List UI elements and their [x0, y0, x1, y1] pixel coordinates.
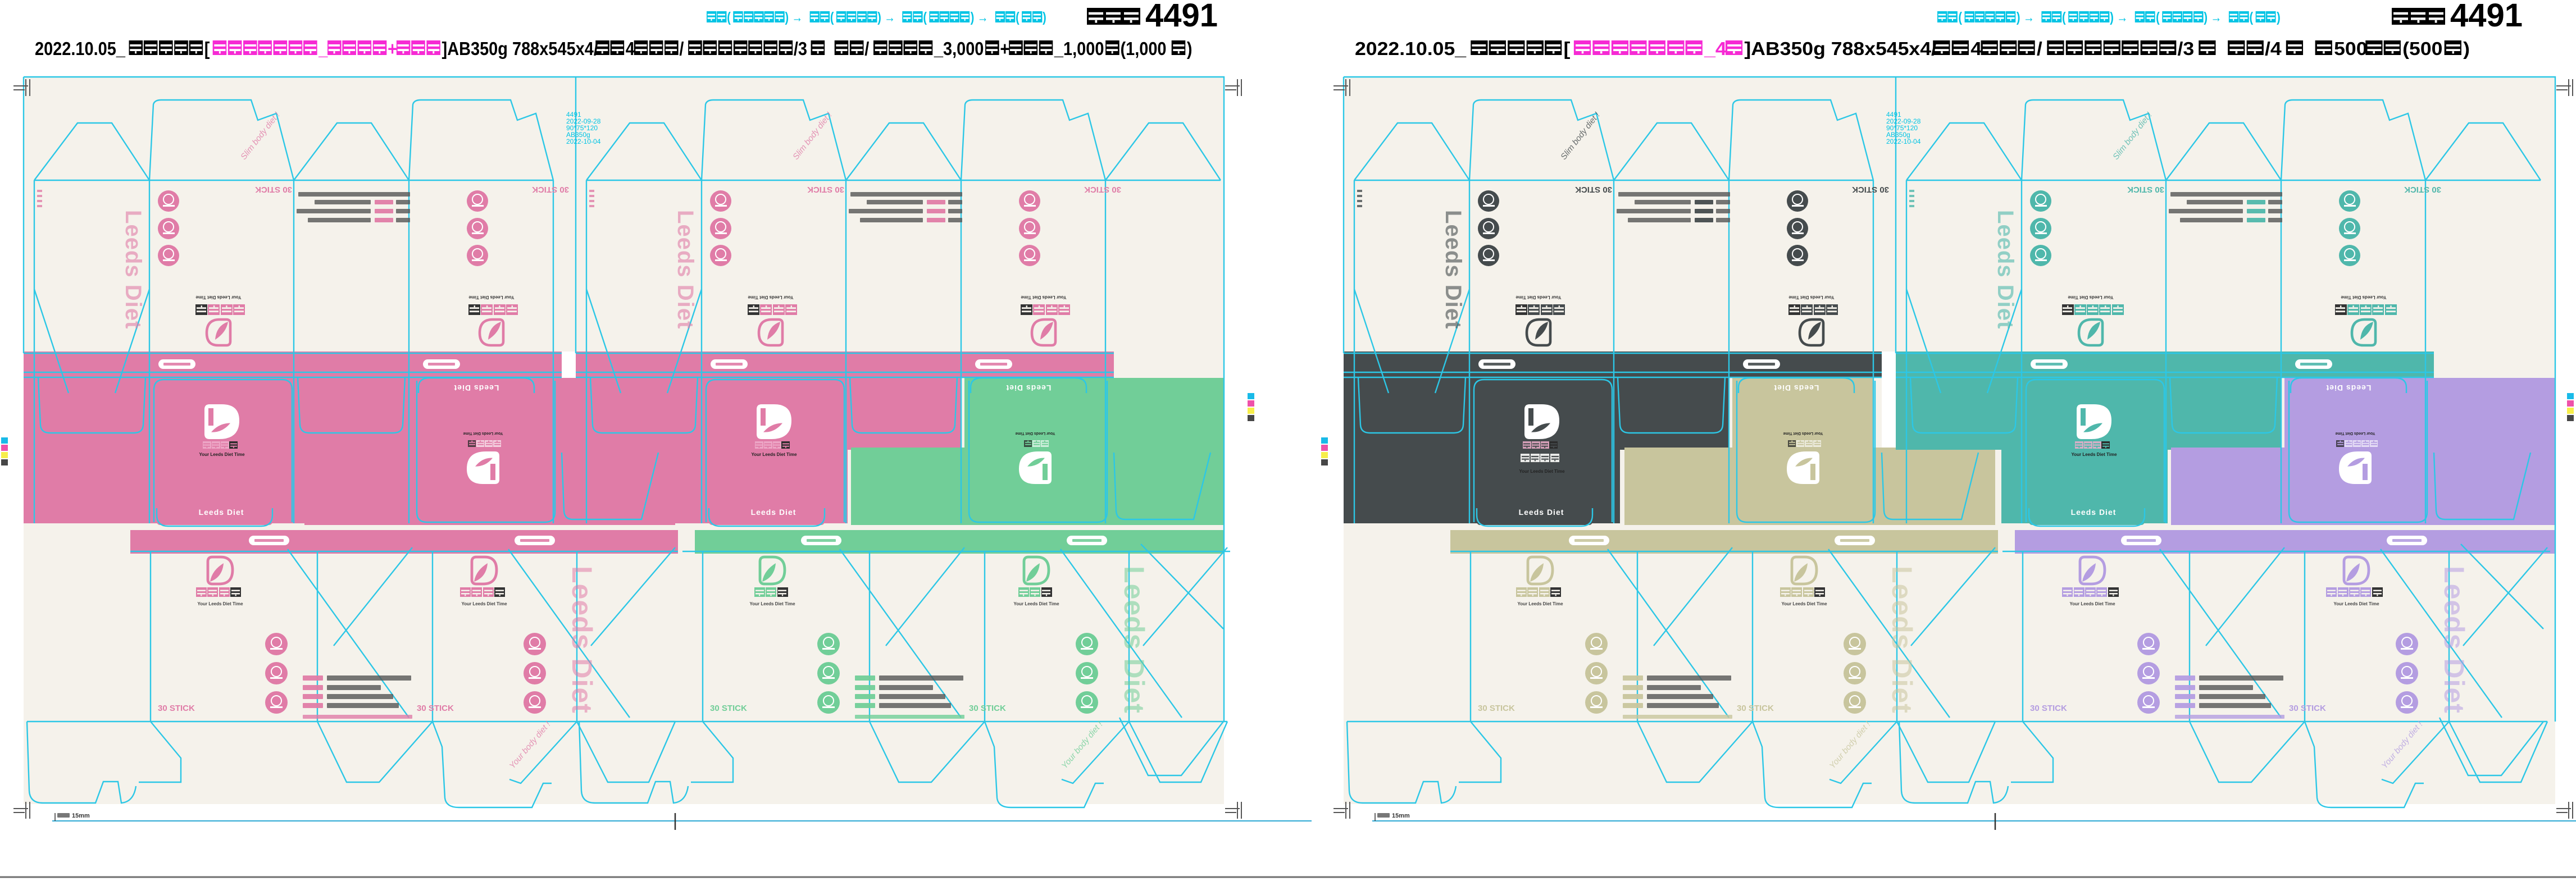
- svg-text:500: 500: [2334, 39, 2367, 60]
- svg-text:/3: /3: [794, 38, 807, 59]
- svg-text:(: (: [923, 10, 927, 25]
- svg-text:4491: 4491: [2450, 0, 2523, 34]
- svg-text:30 STICK: 30 STICK: [2030, 704, 2067, 713]
- svg-text:Leeds Diet: Leeds Diet: [2071, 508, 2117, 517]
- svg-text:): ): [1043, 10, 1046, 25]
- svg-text:): ): [2463, 39, 2470, 60]
- svg-text:Your Leeds Diet Time: Your Leeds Diet Time: [1788, 295, 1835, 300]
- svg-text:(: (: [830, 10, 834, 25]
- svg-text:Your Leeds Diet Time: Your Leeds Diet Time: [749, 601, 795, 606]
- svg-text:4: 4: [626, 38, 635, 59]
- svg-text:/: /: [864, 38, 869, 59]
- svg-text:30 STICK: 30 STICK: [2127, 185, 2164, 194]
- svg-text:Your Leeds Diet Time: Your Leeds Diet Time: [195, 295, 242, 300]
- svg-text:Leeds Diet: Leeds Diet: [566, 566, 598, 714]
- svg-text:2022.10.05_: 2022.10.05_: [1355, 39, 1467, 60]
- svg-text:2022.10.05_: 2022.10.05_: [35, 38, 126, 59]
- svg-text:30 STICK: 30 STICK: [158, 704, 195, 713]
- svg-text:Leeds Diet: Leeds Diet: [1118, 566, 1150, 714]
- svg-text:30 STICK: 30 STICK: [1737, 704, 1774, 713]
- svg-text:Leeds Diet: Leeds Diet: [1006, 384, 1052, 392]
- svg-text:+: +: [1000, 38, 1009, 59]
- svg-text:) →: ) →: [877, 10, 895, 25]
- svg-text:(: (: [1016, 10, 1020, 25]
- svg-text:Leeds Diet: Leeds Diet: [1774, 384, 1819, 392]
- svg-text:Leeds Diet: Leeds Diet: [1441, 210, 1466, 329]
- svg-text:_3,000: _3,000: [934, 38, 984, 59]
- svg-text:Leeds Diet: Leeds Diet: [199, 508, 244, 517]
- svg-text:Your Leeds Diet Time: Your Leeds Diet Time: [2335, 431, 2375, 435]
- svg-text:) →: ) →: [2017, 10, 2035, 25]
- svg-text:[: [: [204, 38, 210, 59]
- svg-text:Your Leeds Diet Time: Your Leeds Diet Time: [197, 601, 243, 606]
- svg-text:/3: /3: [2177, 39, 2194, 60]
- svg-text:Leeds Diet: Leeds Diet: [121, 210, 145, 329]
- svg-text:(: (: [2250, 10, 2254, 25]
- svg-text:Your Leeds Diet Time: Your Leeds Diet Time: [1517, 601, 1563, 606]
- svg-text:30 STICK: 30 STICK: [1084, 185, 1121, 194]
- svg-text:) →: ) →: [2204, 10, 2222, 25]
- svg-text:30 STICK: 30 STICK: [710, 704, 747, 713]
- svg-text:30 STICK: 30 STICK: [807, 185, 844, 194]
- svg-text:Leeds Diet: Leeds Diet: [2438, 566, 2470, 714]
- svg-text:]AB350g 788x545x4/: ]AB350g 788x545x4/: [1744, 39, 1937, 60]
- svg-text:30 STICK: 30 STICK: [1478, 704, 1515, 713]
- svg-text:(: (: [2062, 10, 2066, 25]
- svg-text:Leeds Diet: Leeds Diet: [1993, 210, 2018, 329]
- svg-text:2022-10-04: 2022-10-04: [566, 138, 601, 145]
- svg-text:(: (: [1958, 10, 1962, 25]
- svg-text:) →: ) →: [785, 10, 803, 25]
- svg-text:30 STICK: 30 STICK: [2289, 704, 2326, 713]
- svg-text:Your Leeds Diet Time: Your Leeds Diet Time: [1519, 469, 1565, 474]
- svg-text:_1,000: _1,000: [1054, 38, 1104, 59]
- svg-text:30 STICK: 30 STICK: [969, 704, 1006, 713]
- svg-text:30 STICK: 30 STICK: [2404, 185, 2441, 194]
- svg-text:15mm: 15mm: [72, 812, 90, 819]
- svg-text:Your Leeds Diet Time: Your Leeds Diet Time: [2069, 601, 2115, 606]
- svg-text:Your Leeds Diet Time: Your Leeds Diet Time: [748, 295, 794, 300]
- svg-text:): ): [2277, 10, 2281, 25]
- svg-text:30 STICK: 30 STICK: [1852, 185, 1889, 194]
- svg-text:Leeds Diet: Leeds Diet: [454, 384, 499, 392]
- svg-text:/: /: [679, 38, 684, 59]
- svg-text:_4: _4: [1704, 39, 1727, 60]
- svg-text:4: 4: [1970, 39, 1982, 60]
- svg-text:30 STICK: 30 STICK: [532, 185, 569, 194]
- svg-text:(: (: [2156, 10, 2160, 25]
- svg-text:) →: ) →: [2110, 10, 2128, 25]
- svg-text:(500: (500: [2402, 39, 2442, 60]
- svg-text:Leeds Diet: Leeds Diet: [751, 508, 797, 517]
- svg-text:Your Leeds Diet Time: Your Leeds Diet Time: [1021, 295, 1067, 300]
- svg-text:Leeds Diet: Leeds Diet: [2326, 384, 2372, 392]
- svg-text:Your Leeds Diet Time: Your Leeds Diet Time: [1783, 431, 1823, 435]
- svg-text:4491: 4491: [1145, 0, 1218, 34]
- svg-text:Your Leeds Diet Time: Your Leeds Diet Time: [463, 431, 503, 435]
- svg-text:(: (: [727, 10, 731, 25]
- svg-text:]AB350g 788x545x4/: ]AB350g 788x545x4/: [442, 38, 599, 59]
- svg-text:Your Leeds Diet Time: Your Leeds Diet Time: [2068, 295, 2114, 300]
- svg-text:/: /: [2037, 39, 2042, 60]
- svg-text:Your Leeds Diet Time: Your Leeds Diet Time: [2071, 452, 2117, 457]
- svg-text:Leeds Diet: Leeds Diet: [1886, 566, 1918, 714]
- svg-text:): ): [1187, 38, 1193, 59]
- svg-text:) →: ) →: [971, 10, 989, 25]
- svg-text:Your Leeds Diet Time: Your Leeds Diet Time: [461, 601, 507, 606]
- svg-text:Leeds Diet: Leeds Diet: [673, 210, 698, 329]
- svg-text:15mm: 15mm: [1392, 812, 1410, 819]
- svg-text:2022-10-04: 2022-10-04: [1886, 138, 1921, 145]
- svg-text:+: +: [388, 38, 397, 59]
- svg-text:[: [: [1564, 39, 1571, 60]
- svg-text:Your Leeds Diet Time: Your Leeds Diet Time: [1013, 601, 1059, 606]
- svg-text:_: _: [318, 38, 328, 59]
- svg-text:Your Leeds Diet Time: Your Leeds Diet Time: [468, 295, 515, 300]
- svg-text:Leeds Diet: Leeds Diet: [1519, 508, 1564, 517]
- svg-text:(1,000: (1,000: [1120, 38, 1166, 59]
- svg-text:Your Leeds Diet Time: Your Leeds Diet Time: [1015, 431, 1055, 435]
- svg-text:Your Leeds Diet Time: Your Leeds Diet Time: [751, 452, 797, 457]
- svg-text:Your Leeds Diet Time: Your Leeds Diet Time: [2333, 601, 2379, 606]
- svg-text:30 STICK: 30 STICK: [1575, 185, 1612, 194]
- svg-text:Your Leeds Diet Time: Your Leeds Diet Time: [1515, 295, 1562, 300]
- svg-text:/4: /4: [2265, 39, 2282, 60]
- svg-text:30 STICK: 30 STICK: [255, 185, 292, 194]
- svg-text:30 STICK: 30 STICK: [417, 704, 454, 713]
- svg-text:Your Leeds Diet Time: Your Leeds Diet Time: [1781, 601, 1827, 606]
- svg-text:Your Leeds Diet Time: Your Leeds Diet Time: [2341, 295, 2387, 300]
- svg-text:Your Leeds Diet Time: Your Leeds Diet Time: [199, 452, 245, 457]
